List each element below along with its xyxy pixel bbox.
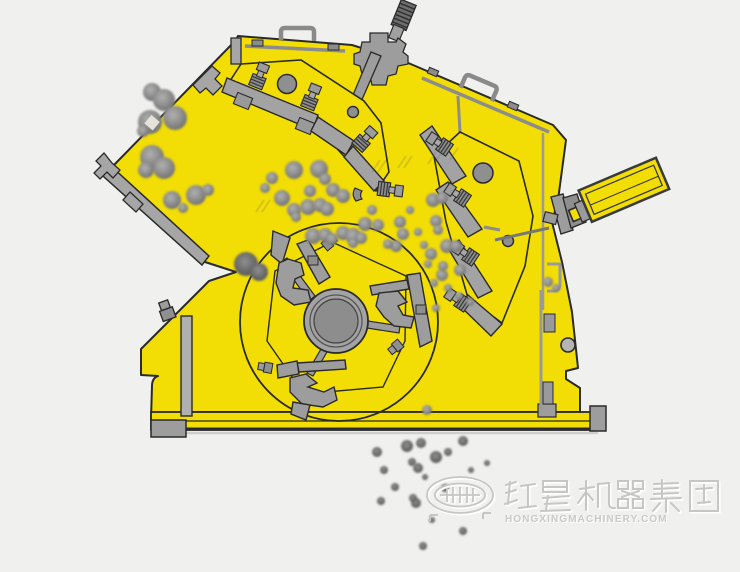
svg-text:HONGXINGMACHINERY.COM: HONGXINGMACHINERY.COM [505,514,668,525]
